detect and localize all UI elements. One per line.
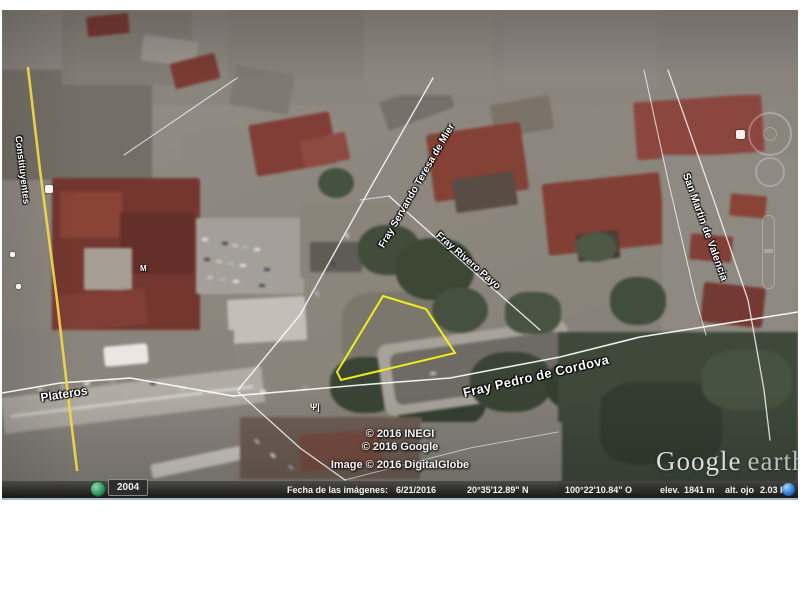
earth-viewport[interactable]: Ψ| M Constituyentes Plateros Fray Pedro … — [2, 10, 798, 500]
longitude-readout: 100°22'10.84" O — [565, 485, 632, 495]
zoom-slider-knob[interactable] — [764, 249, 773, 253]
attribution-digitalglobe: Image © 2016 DigitalGlobe — [331, 459, 469, 471]
logo-earth-text: earth — [747, 446, 798, 476]
attribution-inegi: © 2016 INEGI — [331, 428, 469, 440]
elevation-label: elev. — [660, 485, 679, 495]
imagery-date-value: 6/21/2016 — [396, 485, 436, 495]
compass-inner-ring — [763, 127, 777, 141]
logo-google-text: Google — [656, 446, 741, 476]
map-attribution: © 2016 INEGI © 2016 Google Image © 2016 … — [331, 428, 469, 471]
zoom-slider-control[interactable] — [762, 215, 775, 289]
status-sphere-icon — [782, 483, 795, 496]
parcel-polygon[interactable] — [337, 296, 455, 380]
eye-altitude-label: alt. ojo — [725, 485, 754, 495]
imagery-date-label: Fecha de las imágenes: — [287, 485, 388, 495]
imagery-year-badge[interactable]: 2004 — [108, 479, 148, 496]
latitude-readout: 20°35'12.89" N — [467, 485, 529, 495]
parcel-polygon-layer — [2, 10, 798, 498]
attribution-google: © 2016 Google — [331, 441, 469, 453]
elevation-value: 1841 m — [684, 485, 715, 495]
google-earth-window: Ψ| M Constituyentes Plateros Fray Pedro … — [0, 0, 800, 600]
look-joystick-control[interactable] — [755, 157, 785, 187]
compass-control[interactable] — [748, 112, 792, 156]
google-earth-logo: Googleearth — [656, 446, 798, 477]
historical-imagery-clock-icon[interactable] — [90, 481, 106, 497]
